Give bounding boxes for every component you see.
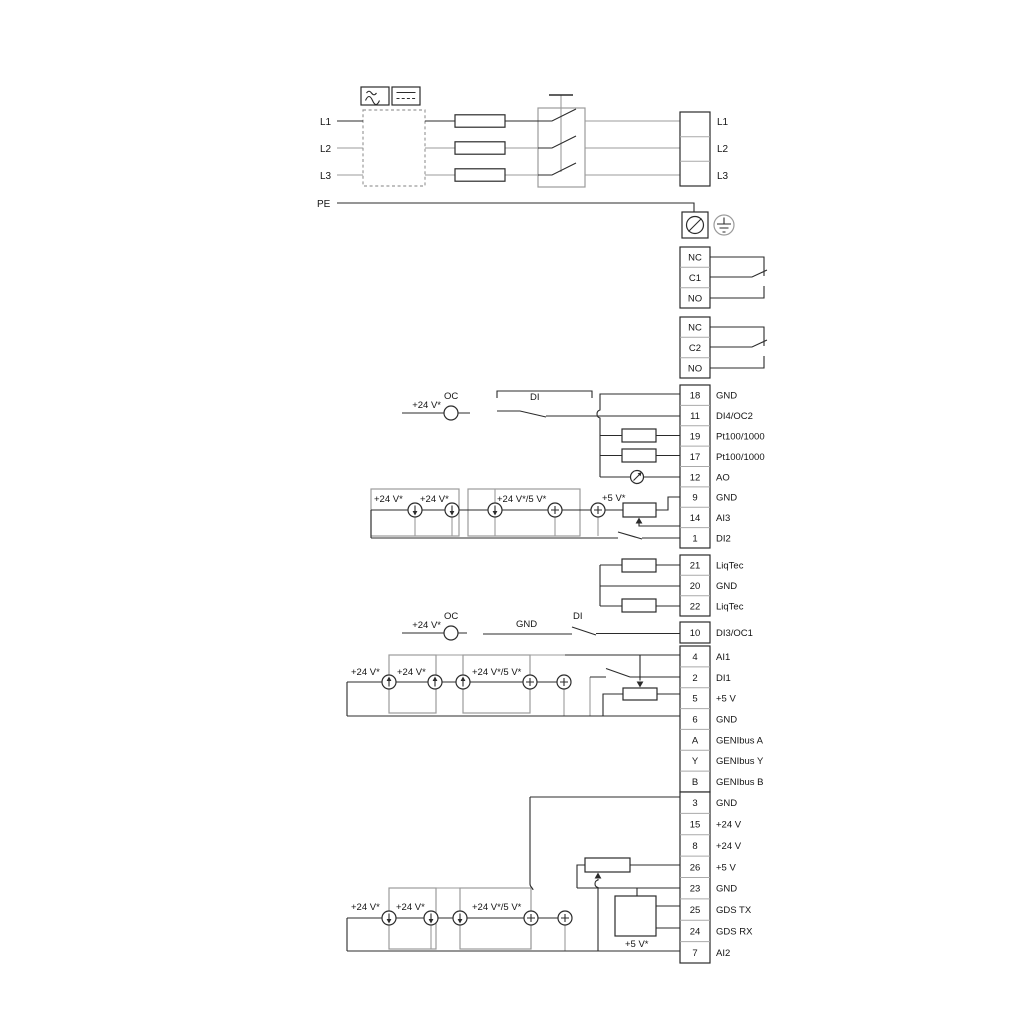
ai3-potentiometer xyxy=(623,503,656,517)
v24-label: +24 V* xyxy=(396,902,425,913)
terminal-number: 10 xyxy=(690,628,701,639)
terminal-label: +5 V xyxy=(716,694,736,705)
terminal-number: 6 xyxy=(692,715,697,726)
dc-symbol-box xyxy=(392,87,420,105)
terminal-number: 1 xyxy=(692,533,697,544)
terminal-label: GDS RX xyxy=(716,926,753,937)
ai2-wiper-drop xyxy=(595,879,598,951)
terminal-label: Pt100/1000 xyxy=(716,452,765,463)
terminal-label: GND xyxy=(716,581,737,592)
fuse-l3 xyxy=(455,169,505,181)
di1-wires xyxy=(590,669,680,678)
terminal-number: A xyxy=(692,735,699,746)
relay2-contact-wires xyxy=(710,327,767,368)
v5-label: +5 V* xyxy=(602,493,626,504)
ai1-potentiometer xyxy=(623,688,657,700)
v24-label: +24 V* xyxy=(351,667,380,678)
v24-label: +24 V* xyxy=(374,494,403,505)
terminal-number: 26 xyxy=(690,862,701,873)
terminal-label: DI2 xyxy=(716,533,731,544)
l3-input-label: L3 xyxy=(320,171,332,182)
v24-label: +24 V* xyxy=(412,620,441,631)
terminal-label: AI3 xyxy=(716,513,730,524)
ac-symbol-box xyxy=(361,87,389,105)
l1-input-label: L1 xyxy=(320,117,332,128)
terminal-label: GND xyxy=(716,798,737,809)
relay1-contact-wires xyxy=(710,257,767,298)
terminal-number: 20 xyxy=(690,581,701,592)
ai2-potentiometer xyxy=(585,858,630,872)
relay2-nc: NC xyxy=(688,323,702,334)
terminal-label: GENIbus Y xyxy=(716,756,764,767)
terminal-label: DI4/OC2 xyxy=(716,411,753,422)
relay2-no: NO xyxy=(688,363,702,374)
terminal-number: 3 xyxy=(692,798,697,809)
ai2-pot-wiper-arrow xyxy=(595,873,602,879)
terminal-number: 12 xyxy=(690,472,701,483)
fuse-l1 xyxy=(455,115,505,127)
gray-structure xyxy=(363,95,598,951)
relay1-c1: C1 xyxy=(689,273,701,284)
terminal-label: DI3/OC1 xyxy=(716,628,753,639)
terminal-number: 5 xyxy=(692,694,697,705)
terminal-label: +24 V xyxy=(716,820,742,831)
terminal-number: 22 xyxy=(690,601,701,612)
terminal-label: AO xyxy=(716,472,730,483)
l2-l3-and-output-wires xyxy=(337,121,680,175)
terminal-label: LiqTec xyxy=(716,601,744,612)
l3-terminal-label: L3 xyxy=(717,171,729,182)
terminal-label: DI1 xyxy=(716,673,731,684)
terminal-number: 4 xyxy=(692,652,697,663)
terminal-number: 24 xyxy=(690,926,701,937)
pe-input-label: PE xyxy=(317,199,331,210)
ai1-pot-wiper-arrow xyxy=(637,682,644,688)
terminal-number: Y xyxy=(692,756,699,767)
oc2-collector-circle xyxy=(444,406,458,420)
gds-sensor-box xyxy=(615,896,656,936)
v24-5-label: +24 V*/5 V* xyxy=(497,494,547,505)
wiring-diagram: L1 L2 L3 PE L1 L2 L3 NC C1 NO NC C2 NO 1… xyxy=(0,0,1024,1024)
fuse-l2 xyxy=(455,142,505,154)
terminal-number: 2 xyxy=(692,673,697,684)
gnd-drop-3 xyxy=(530,797,680,890)
liqtec-resistor-2 xyxy=(622,599,656,612)
oc1-collector-circle xyxy=(444,626,458,640)
terminal-number: 19 xyxy=(690,432,701,443)
terminal-label: LiqTec xyxy=(716,561,744,572)
terminal-label: AI1 xyxy=(716,652,730,663)
v24-label: +24 V* xyxy=(397,667,426,678)
v24-label: +24 V* xyxy=(412,400,441,411)
oc-label: OC xyxy=(444,611,458,622)
terminal-label: GND xyxy=(716,391,737,402)
v24-5-label: +24 V*/5 V* xyxy=(472,667,522,678)
emc-filter-box xyxy=(363,110,425,186)
terminal-number: 11 xyxy=(690,411,700,422)
power-wires-gray xyxy=(337,121,680,175)
v24-label: +24 V* xyxy=(420,494,449,505)
terminal-label: AI2 xyxy=(716,948,730,959)
relay2-c2: C2 xyxy=(689,343,701,354)
terminal-number: 8 xyxy=(692,841,697,852)
l2-input-label: L2 xyxy=(320,144,332,155)
relay1-no: NO xyxy=(688,293,702,304)
di-label: DI xyxy=(530,392,540,403)
terminal-number: 23 xyxy=(690,884,701,895)
terminal-label: Pt100/1000 xyxy=(716,432,765,443)
terminal-label: GDS TX xyxy=(716,905,752,916)
pt100-resistor-2 xyxy=(622,449,656,462)
v24-label: +24 V* xyxy=(351,902,380,913)
mains-terminal-block xyxy=(680,112,710,186)
liqtec-resistor-1 xyxy=(622,559,656,572)
di-label: DI xyxy=(573,611,583,622)
ai3-pot-wiper-arrow xyxy=(636,518,643,524)
oc-label: OC xyxy=(444,391,458,402)
terminal-number: 21 xyxy=(690,561,701,572)
terminal-number: 14 xyxy=(690,513,701,524)
terminal-label: GND xyxy=(716,715,737,726)
terminal-number: 25 xyxy=(690,905,701,916)
terminal-number: 15 xyxy=(690,820,701,831)
l2-terminal-label: L2 xyxy=(717,144,729,155)
gnd-label: GND xyxy=(516,619,537,630)
l1-terminal-label: L1 xyxy=(717,117,729,128)
terminal-label: GENIbus A xyxy=(716,735,764,746)
ai1-option-box-2 xyxy=(463,655,530,713)
terminal-number: 17 xyxy=(690,452,701,463)
terminal-number: 9 xyxy=(692,493,697,504)
relay1-nc: NC xyxy=(688,253,702,264)
pt100-resistor-1 xyxy=(622,429,656,442)
terminal-label: GENIbus B xyxy=(716,777,764,788)
v24-5-label: +24 V*/5 V* xyxy=(472,902,522,913)
pe-wire xyxy=(337,203,694,212)
terminal-number: 18 xyxy=(690,391,701,402)
terminal-label: +24 V xyxy=(716,841,742,852)
v5-label: +5 V* xyxy=(625,939,649,950)
di-bracket xyxy=(497,391,592,398)
terminal-label: +5 V xyxy=(716,862,736,873)
terminal-number: 7 xyxy=(692,948,697,959)
terminal-label: GND xyxy=(716,493,737,504)
terminal-label: GND xyxy=(716,884,737,895)
terminal-number: B xyxy=(692,777,698,788)
